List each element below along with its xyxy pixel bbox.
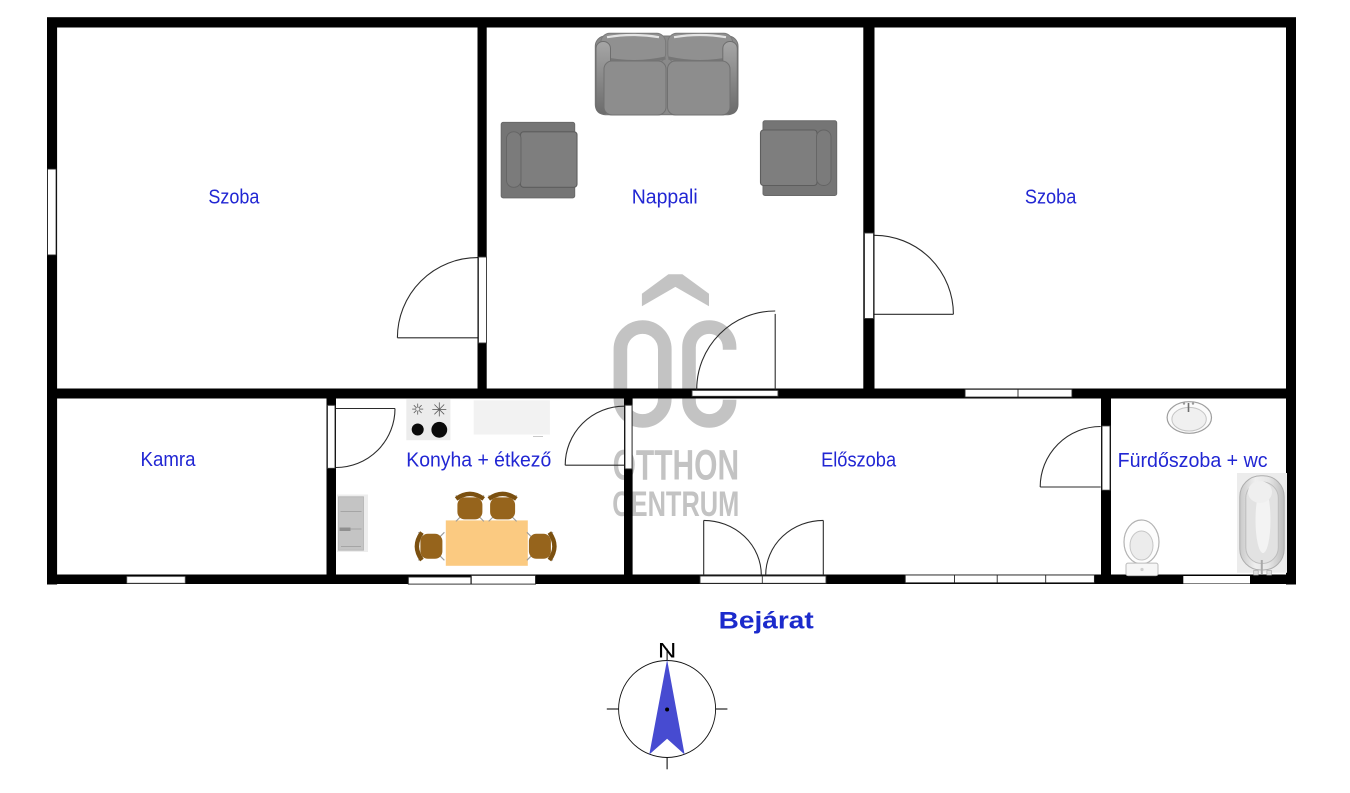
svg-text:Szoba: Szoba bbox=[208, 187, 260, 209]
svg-text:Kamra: Kamra bbox=[141, 449, 197, 471]
svg-text:Konyha + étkező: Konyha + étkező bbox=[406, 450, 551, 472]
svg-text:Fürdőszoba + wc: Fürdőszoba + wc bbox=[1118, 450, 1268, 472]
svg-text:Nappali: Nappali bbox=[632, 187, 698, 209]
svg-text:N: N bbox=[658, 640, 677, 663]
svg-text:Szoba: Szoba bbox=[1025, 187, 1077, 209]
svg-text:Bejárat: Bejárat bbox=[719, 608, 814, 635]
svg-text:Előszoba: Előszoba bbox=[821, 450, 897, 472]
